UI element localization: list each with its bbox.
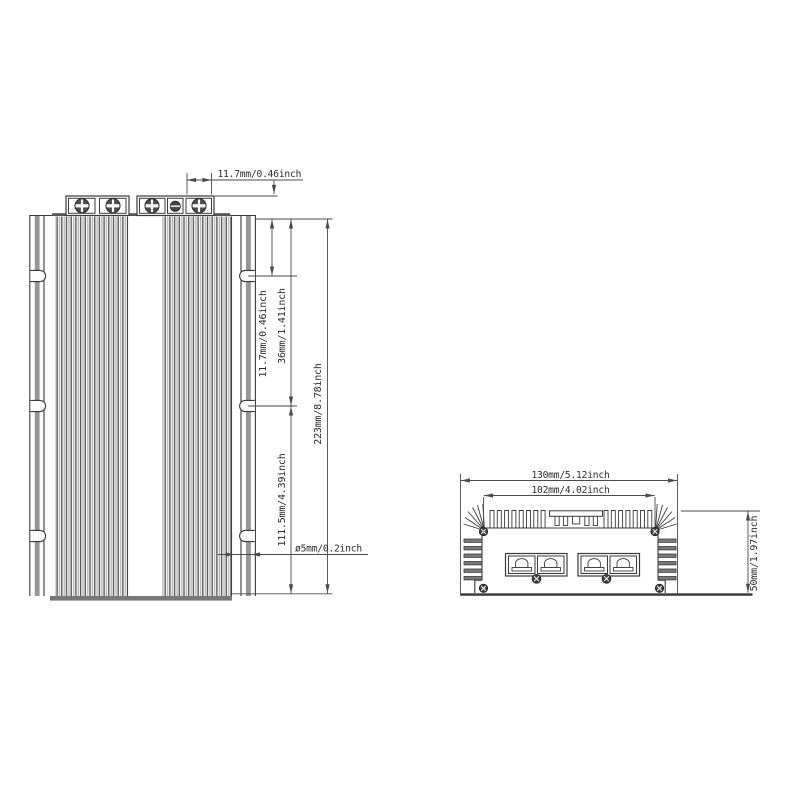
dim-label-overall-width: 130mm/5.12inch <box>531 470 609 481</box>
base-strip <box>50 596 232 601</box>
comb-fins-right <box>604 511 652 529</box>
terminal-screw-icon <box>145 199 159 213</box>
screw-icon <box>602 574 611 583</box>
screw-icon <box>532 574 541 583</box>
bottom-view: 130mm/5.12inch 102mm/4.02inch 50mm/1.97i… <box>461 470 761 596</box>
screw-icon <box>651 527 659 535</box>
corner-fan-right <box>656 504 677 531</box>
dim-label-mounting-width: 102mm/4.02inch <box>531 485 609 496</box>
dim-label-overall-height: 223mm/8.78inch <box>313 363 324 445</box>
front-view: 11.7mm/0.46inch 11.7mm/0.46inch 36mm/1.4… <box>29 169 368 601</box>
terminal-screw-icon <box>192 199 206 213</box>
connector-ports <box>479 527 663 592</box>
terminal-group-a <box>66 196 129 216</box>
terminal-group-b <box>137 196 214 216</box>
screw-icon <box>655 584 663 592</box>
dim-label-slot-diameter: ø5mm/0.2inch <box>295 544 362 555</box>
side-fins-right <box>658 539 676 580</box>
terminal-screw-small-icon <box>170 201 180 211</box>
fin-field-left <box>55 217 128 597</box>
connector-block-b <box>578 554 640 577</box>
dimension-drawing: 11.7mm/0.46inch 11.7mm/0.46inch 36mm/1.4… <box>0 0 800 800</box>
dimension-drawing-canvas: 11.7mm/0.46inch 11.7mm/0.46inch 36mm/1.4… <box>0 0 800 800</box>
bottom-base-line <box>461 593 753 596</box>
connector-block-a <box>506 554 568 577</box>
front-heatsink-body <box>29 213 256 600</box>
screw-icon <box>479 527 487 535</box>
terminal-screw-icon <box>75 199 89 213</box>
dim-label-terminal-pitch: 11.7mm/0.46inch <box>218 169 302 180</box>
center-mounting-bar <box>550 511 603 526</box>
terminal-blocks <box>66 196 214 216</box>
dim-label-slot-to-bottom: 111.5mm/4.39inch <box>277 453 288 546</box>
terminal-screw-icon <box>106 199 120 213</box>
fin-field-right <box>162 217 232 597</box>
side-fins-left <box>464 539 482 580</box>
dim-label-overall-depth: 50mm/1.97inch <box>749 515 760 591</box>
corner-fan-left <box>464 504 485 531</box>
dim-label-terminal-height: 11.7mm/0.46inch <box>258 290 269 377</box>
screw-icon <box>479 584 487 592</box>
comb-fins-left <box>490 511 545 529</box>
dim-label-top-to-first-slot: 36mm/1.41inch <box>277 288 288 364</box>
